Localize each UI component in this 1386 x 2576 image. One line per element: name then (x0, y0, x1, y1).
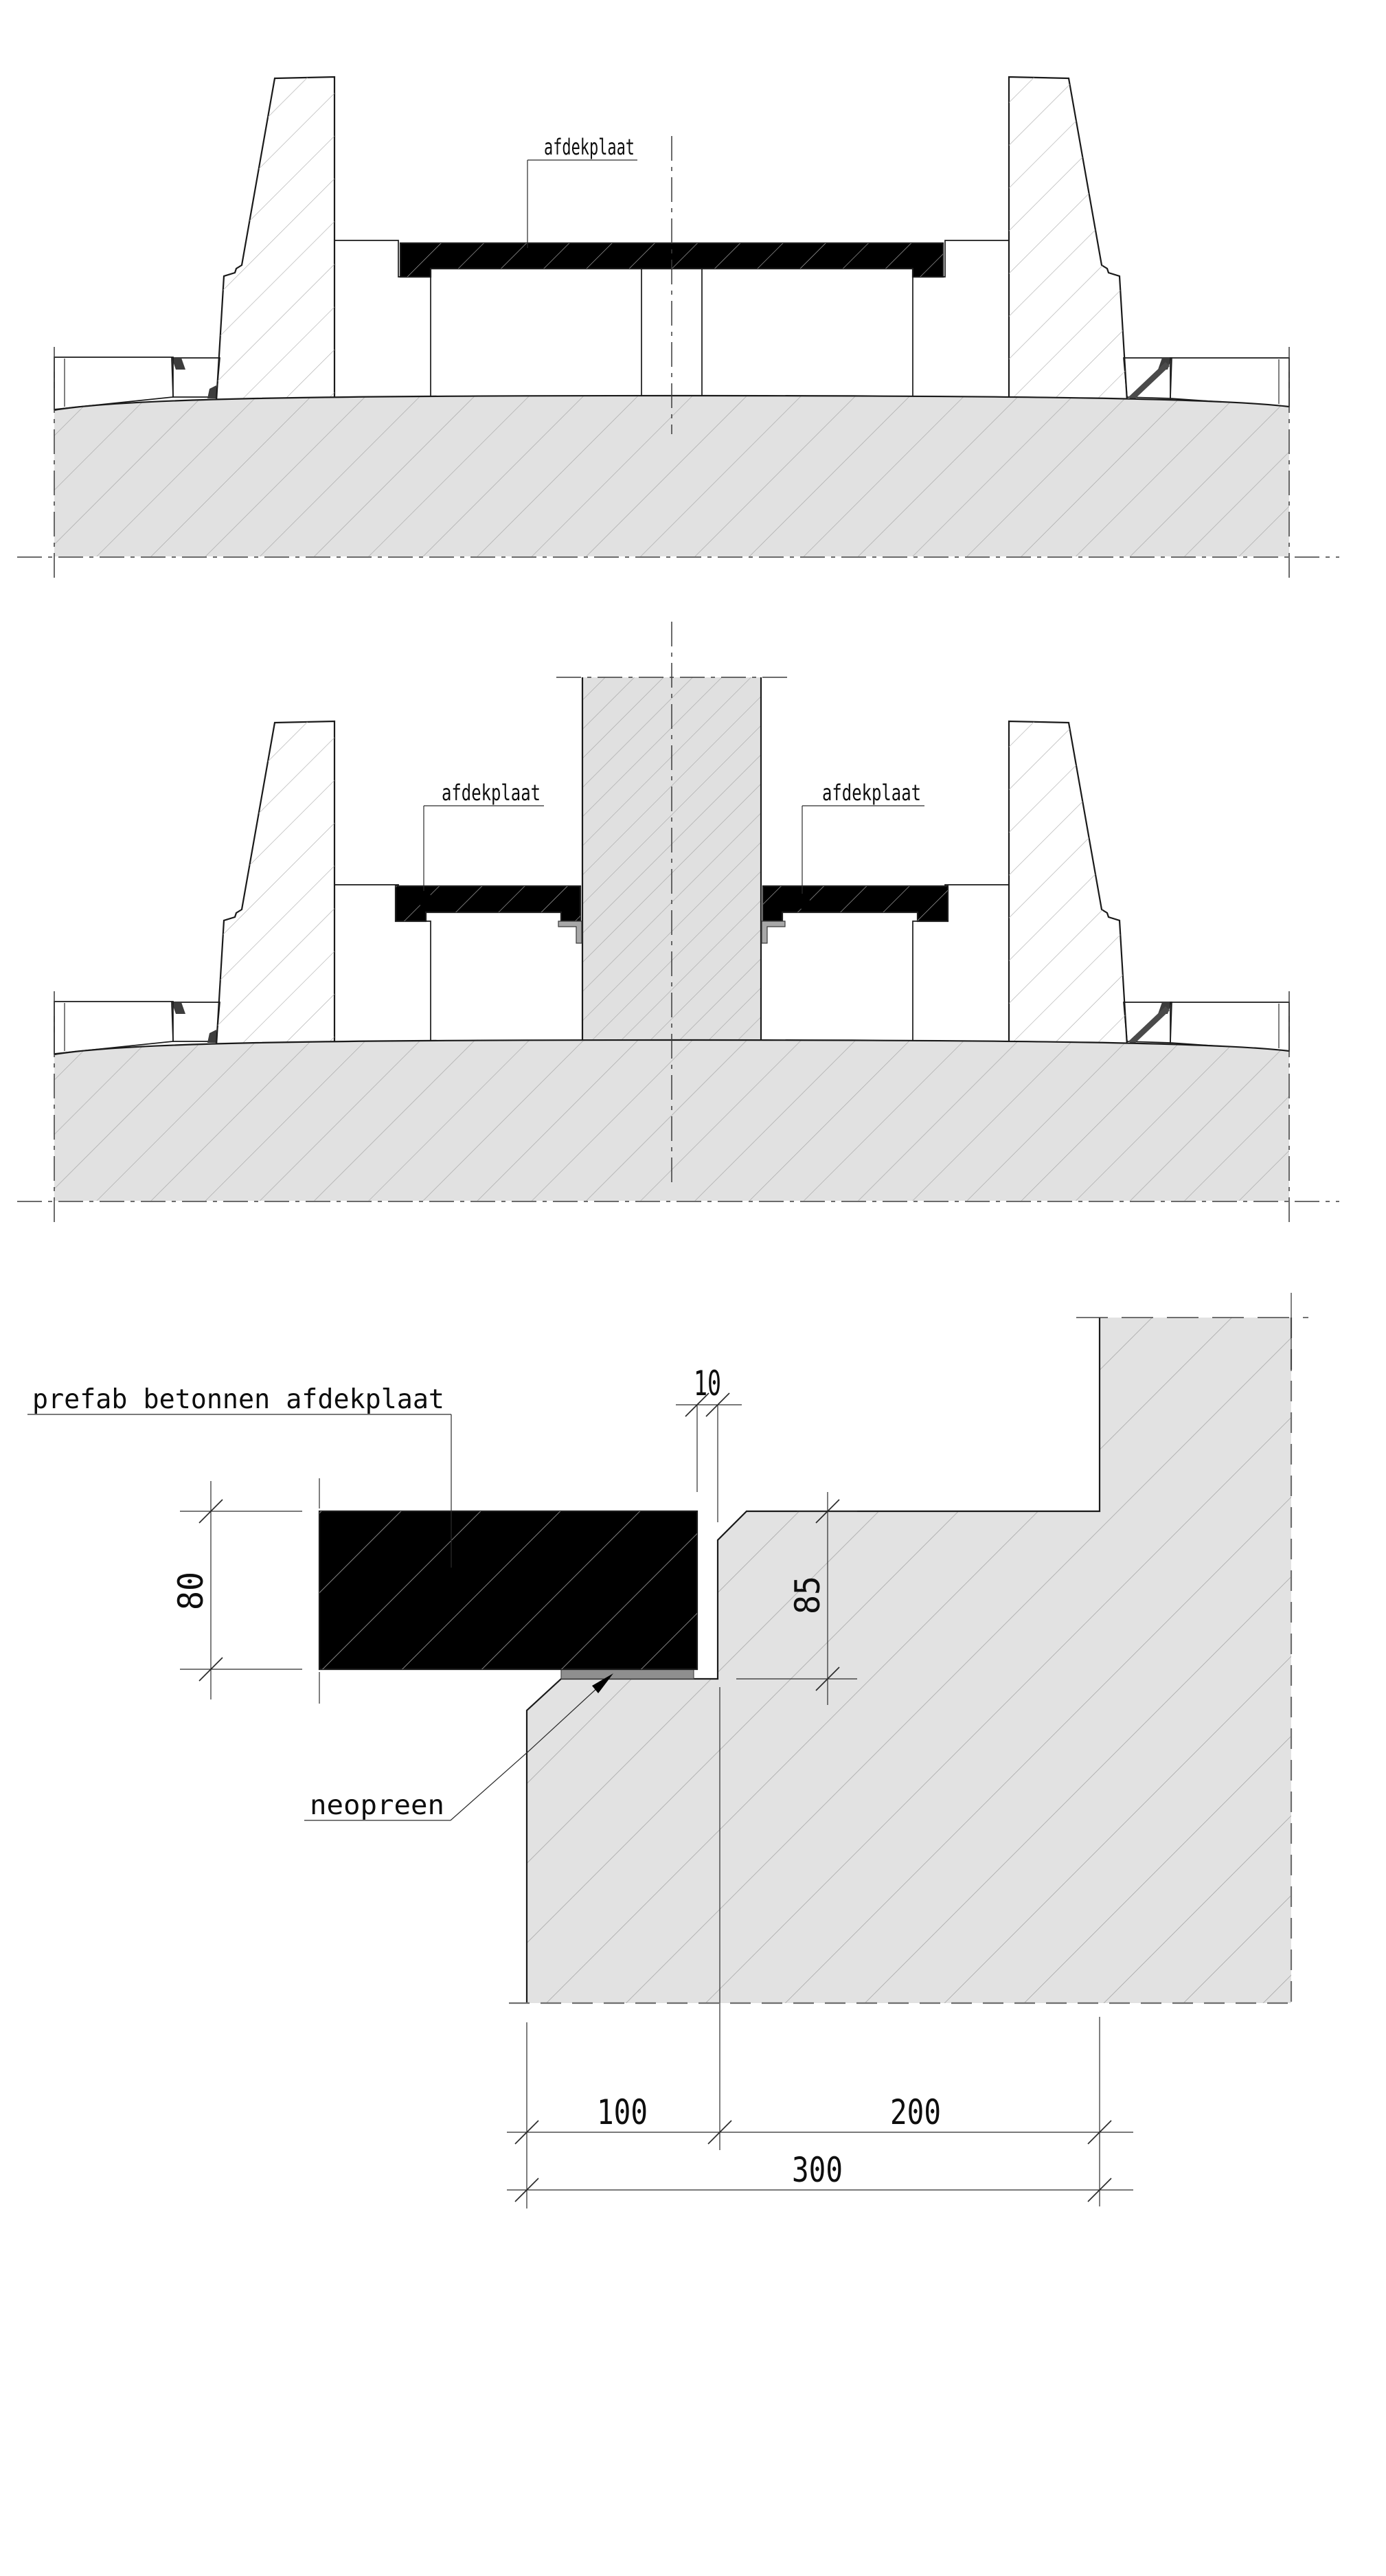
dim-text: 80 (171, 1572, 211, 1610)
dim-text: 10 (694, 1364, 721, 1403)
dim-text: 300 (792, 2150, 843, 2190)
leader-dot (795, 894, 810, 909)
dim-text: 85 (788, 1576, 828, 1614)
leader-dot (521, 248, 534, 262)
label-text: neopreen (310, 1790, 444, 1821)
label-text: afdekplaat (822, 780, 921, 806)
label-text: afdekplaat (544, 134, 635, 160)
dim-text: 200 (890, 2092, 941, 2132)
drawing-sheet: afdekplaat afdekplaat (0, 0, 1386, 2576)
label-text: afdekplaat (442, 780, 541, 806)
leader-dot (442, 1568, 460, 1585)
label-text: prefab betonnen afdekplaat (32, 1384, 444, 1415)
technical-drawing-canvas: afdekplaat afdekplaat (0, 0, 1386, 2576)
neoprene-pad (561, 1669, 694, 1679)
leader-dot (416, 891, 431, 906)
dim-text: 100 (597, 2092, 648, 2132)
